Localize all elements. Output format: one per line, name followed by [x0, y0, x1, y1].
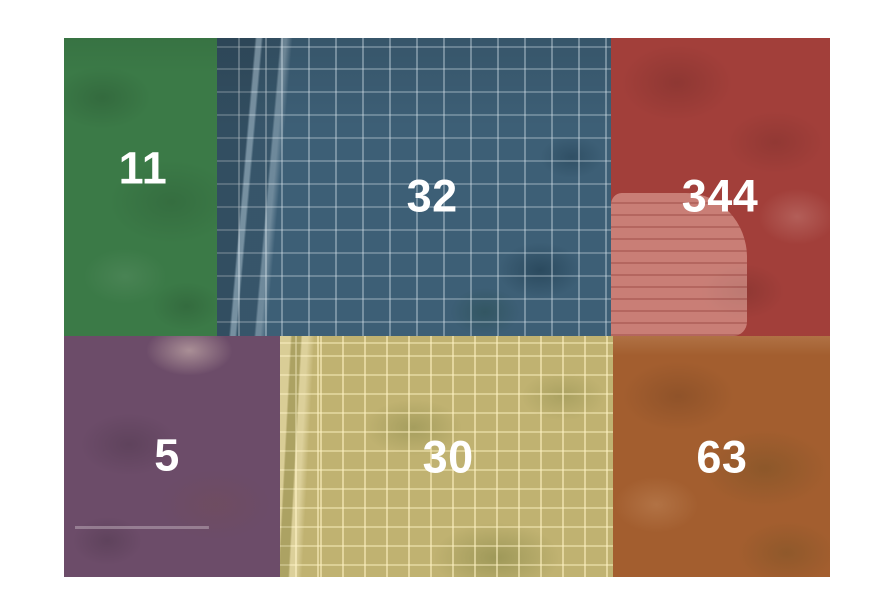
region-count-label: 32: [407, 173, 458, 218]
region-count-label: 11: [119, 145, 168, 190]
map-region-bottom-left: 5: [64, 336, 280, 577]
page: 11 32 344 5 30 63: [0, 0, 878, 611]
map-region-top-middle: 32: [217, 38, 611, 336]
map-region-top-left: 11: [64, 38, 217, 336]
region-count-label: 63: [696, 434, 747, 479]
map-region-bottom-right: 63: [613, 336, 830, 577]
region-count-label: 344: [682, 173, 759, 218]
region-count-label: 30: [423, 434, 474, 479]
map-region-bottom-middle: 30: [280, 336, 613, 577]
region-count-label: 5: [154, 433, 180, 478]
satellite-tile-map: 11 32 344 5 30 63: [64, 38, 830, 577]
map-region-top-right: 344: [611, 38, 830, 336]
